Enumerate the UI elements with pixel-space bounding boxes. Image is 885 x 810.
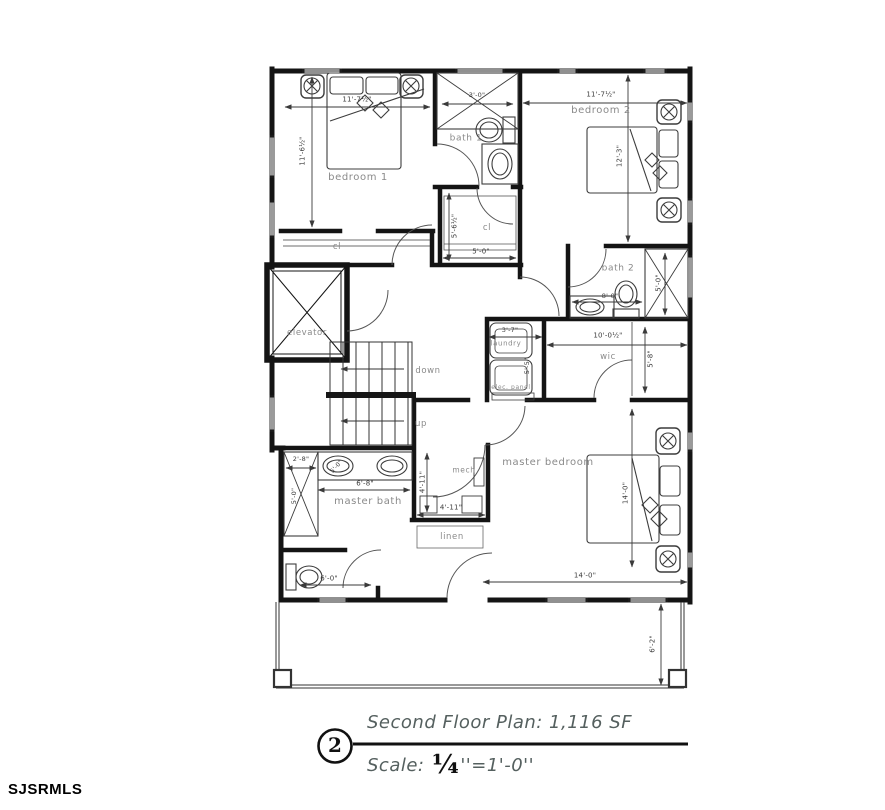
scale-label: Scale: bbox=[367, 755, 425, 776]
bedroom1-furniture bbox=[283, 73, 430, 246]
laundry-fixtures bbox=[490, 323, 534, 400]
drawing-scale: Scale: ¼''=1'-0'' bbox=[367, 750, 534, 780]
deck-outline bbox=[274, 602, 686, 688]
watermark-sjsrmls: SJSRMLS bbox=[8, 781, 82, 798]
plan-number: 2 bbox=[328, 733, 342, 757]
master-bedroom-furniture bbox=[587, 428, 680, 572]
scale-rest: ''=1'-0'' bbox=[460, 755, 534, 776]
bedroom2-furniture bbox=[587, 100, 681, 222]
bath1-fixtures bbox=[437, 73, 518, 184]
scale-fraction: ¼ bbox=[431, 750, 461, 780]
floor-plan-sheet: bedroom 1bath 1bedroom 2bath 2clclelevat… bbox=[0, 0, 885, 810]
floor-plan-linework bbox=[0, 0, 885, 810]
elevator-shaft bbox=[267, 265, 347, 360]
bath2-fixtures bbox=[570, 249, 688, 396]
drawing-title: Second Floor Plan: 1,116 SF bbox=[367, 712, 632, 733]
interior-walls bbox=[272, 71, 690, 600]
